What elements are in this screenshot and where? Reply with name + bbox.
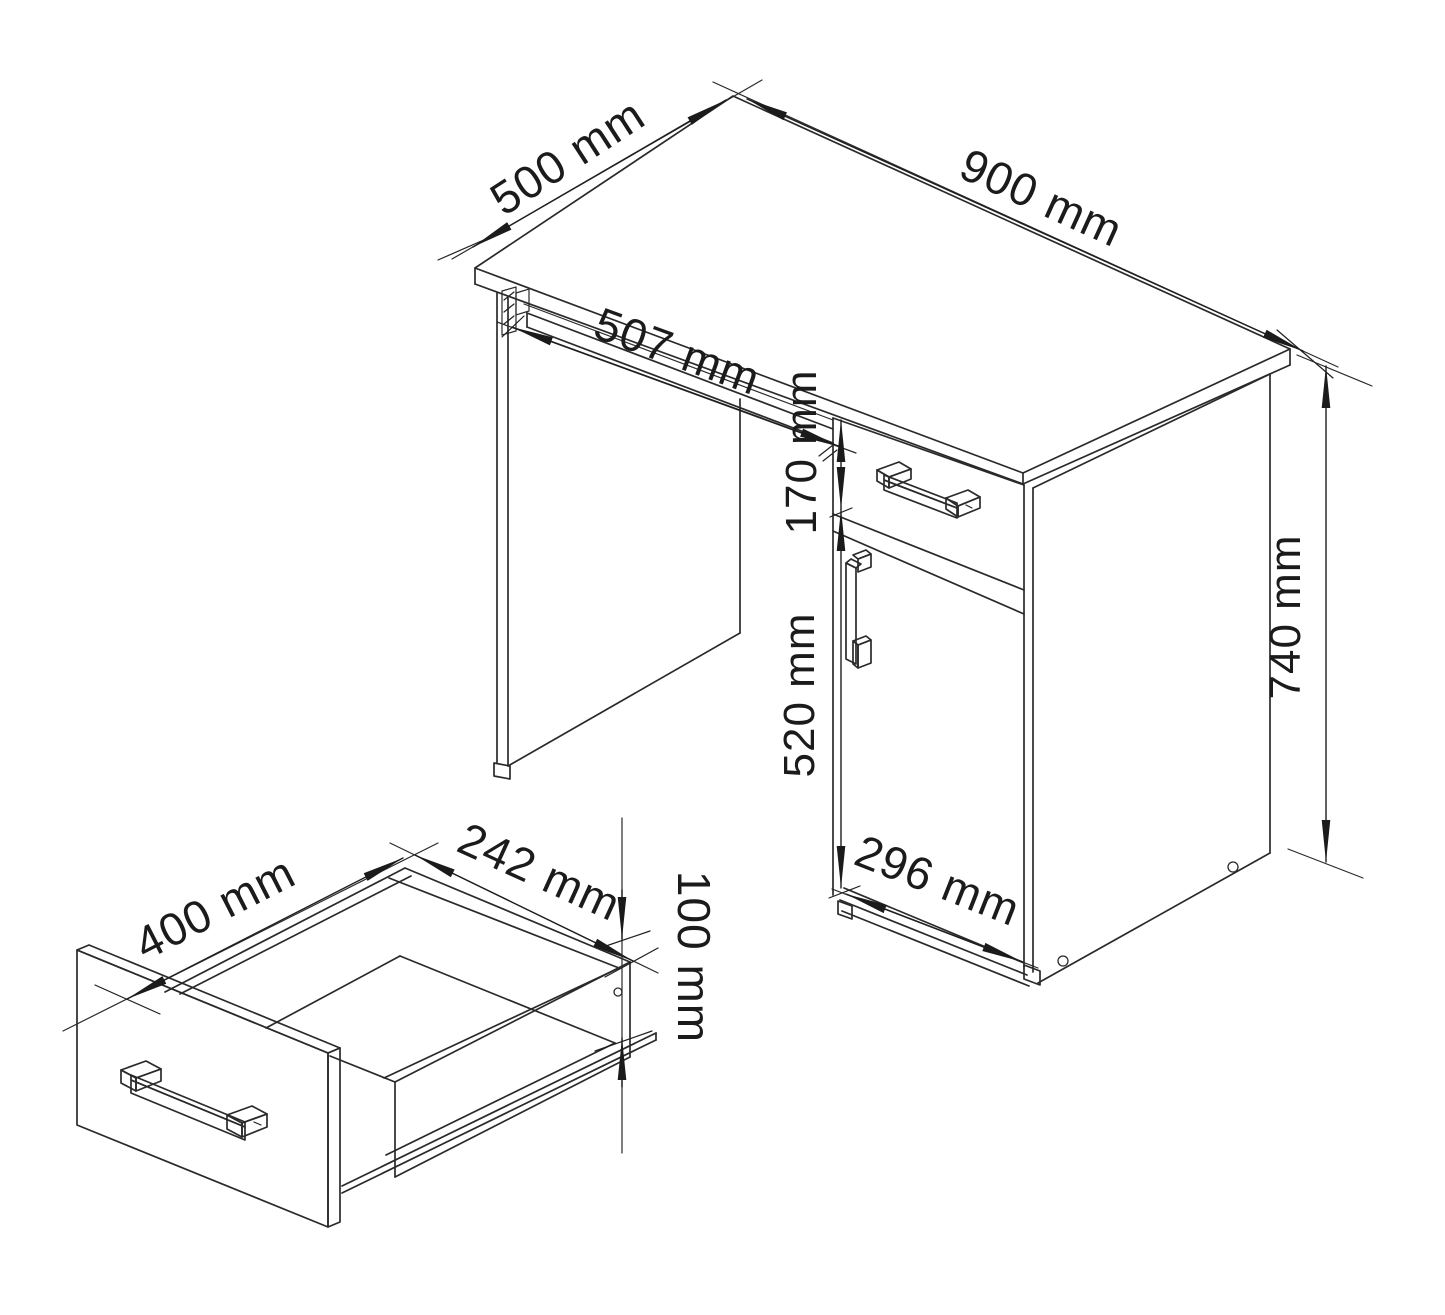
dimension-overall-height-740: 740 mm [1261,355,1372,878]
drawer-front-panel [77,945,340,1227]
furniture-dimension-diagram: 500 mm 900 mm 507 mm 170 mm 520 mm [0,0,1445,1315]
cabinet-drawer-handle [877,462,980,518]
dimension-top-depth-500: 500 mm [438,80,762,260]
dim-label-cabinet-width: 296 mm [848,824,1027,935]
dimension-drawer-height-100: 100 mm [595,818,720,1153]
drawer-detail-drawing: 400 mm 242 mm 100 mm [63,812,720,1227]
drawer-front-handle [121,1061,267,1140]
screw-hole-icon [1228,862,1238,872]
left-panel-foot [494,763,510,779]
dimension-top-width-900: 900 mm [713,82,1338,378]
cabinet-door-handle [846,550,871,668]
dim-label-tray-width: 507 mm [588,297,768,405]
dim-label-door-height: 520 mm [775,613,824,778]
dim-label-drawer-height: 100 mm [668,871,720,1043]
dim-label-drawer-height: 170 mm [777,370,826,535]
desk-drawing: 500 mm 900 mm 507 mm 170 mm 520 mm [438,80,1372,986]
drawer-divider-bottom [833,531,1024,614]
dim-label-top-width: 900 mm [953,138,1131,257]
drawer-runner [342,1040,656,1193]
dim-label-drawer-depth: 400 mm [126,845,303,969]
desk-cabinet [833,374,1270,986]
dimension-door-height-520: 520 mm [775,509,860,898]
dimension-drawer-depth-400: 400 mm [63,843,438,1031]
dim-label-overall-height: 740 mm [1261,535,1310,700]
technical-drawing-page: 500 mm 900 mm 507 mm 170 mm 520 mm [0,0,1445,1315]
drawer-runner [342,1033,656,1186]
screw-hole-icon [614,988,622,996]
cabinet-side-panel [1033,374,1270,983]
screw-hole-icon [1058,956,1068,966]
